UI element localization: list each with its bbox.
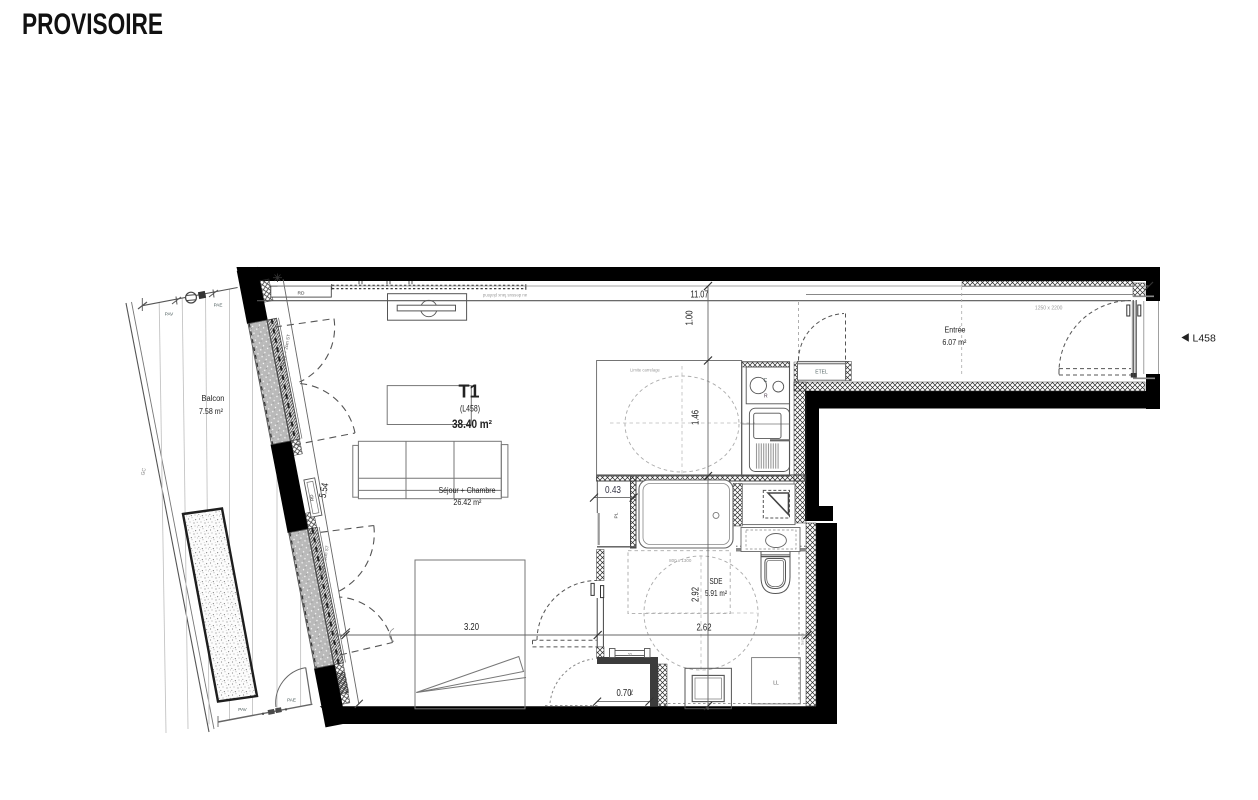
svg-text:PL: PL xyxy=(614,512,620,518)
svg-text:7.58 m²: 7.58 m² xyxy=(199,407,223,416)
svg-text:11.07: 11.07 xyxy=(691,290,709,301)
svg-text:au dessus faux plafond: au dessus faux plafond xyxy=(482,293,527,298)
svg-text:26.42 m²: 26.42 m² xyxy=(453,498,481,507)
svg-text:1250 x 2200: 1250 x 2200 xyxy=(1035,306,1063,312)
svg-text:SDE: SDE xyxy=(710,577,723,586)
svg-text:PAV: PAV xyxy=(165,312,174,317)
svg-text:LL: LL xyxy=(773,681,779,687)
svg-text:800 x 1300: 800 x 1300 xyxy=(669,558,692,563)
svg-text:T1: T1 xyxy=(458,382,479,402)
svg-text:PAV: PAV xyxy=(238,707,247,712)
svg-text:L458: L458 xyxy=(1193,333,1217,345)
svg-text:6.07 m²: 6.07 m² xyxy=(942,338,966,347)
svg-text:(L458): (L458) xyxy=(460,404,480,414)
svg-text:Séjour + Chambre: Séjour + Chambre xyxy=(439,486,496,495)
svg-text:ETEL: ETEL xyxy=(815,370,828,376)
svg-text:5.91 m²: 5.91 m² xyxy=(705,589,727,598)
svg-text:PROVISOIRE: PROVISOIRE xyxy=(22,8,163,41)
svg-text:1.00: 1.00 xyxy=(685,310,696,325)
svg-text:RD: RD xyxy=(298,290,305,296)
svg-text:PAE: PAE xyxy=(287,698,296,703)
svg-text:38.40 m²: 38.40 m² xyxy=(452,419,492,431)
svg-text:C: C xyxy=(764,378,768,384)
svg-text:Limite carrelage: Limite carrelage xyxy=(630,368,660,373)
svg-text:3.20: 3.20 xyxy=(464,622,479,633)
svg-text:Entrée: Entrée xyxy=(945,325,966,334)
svg-text:55: 55 xyxy=(628,653,632,657)
svg-text:2.62: 2.62 xyxy=(697,622,712,633)
svg-text:Balcon: Balcon xyxy=(202,394,225,403)
svg-text:PAE: PAE xyxy=(214,303,223,308)
svg-text:2.92: 2.92 xyxy=(691,587,702,602)
svg-text:R: R xyxy=(764,394,768,400)
svg-text:1.46: 1.46 xyxy=(691,410,702,425)
svg-text:0.70: 0.70 xyxy=(617,688,632,699)
svg-text:0.43: 0.43 xyxy=(605,485,621,496)
